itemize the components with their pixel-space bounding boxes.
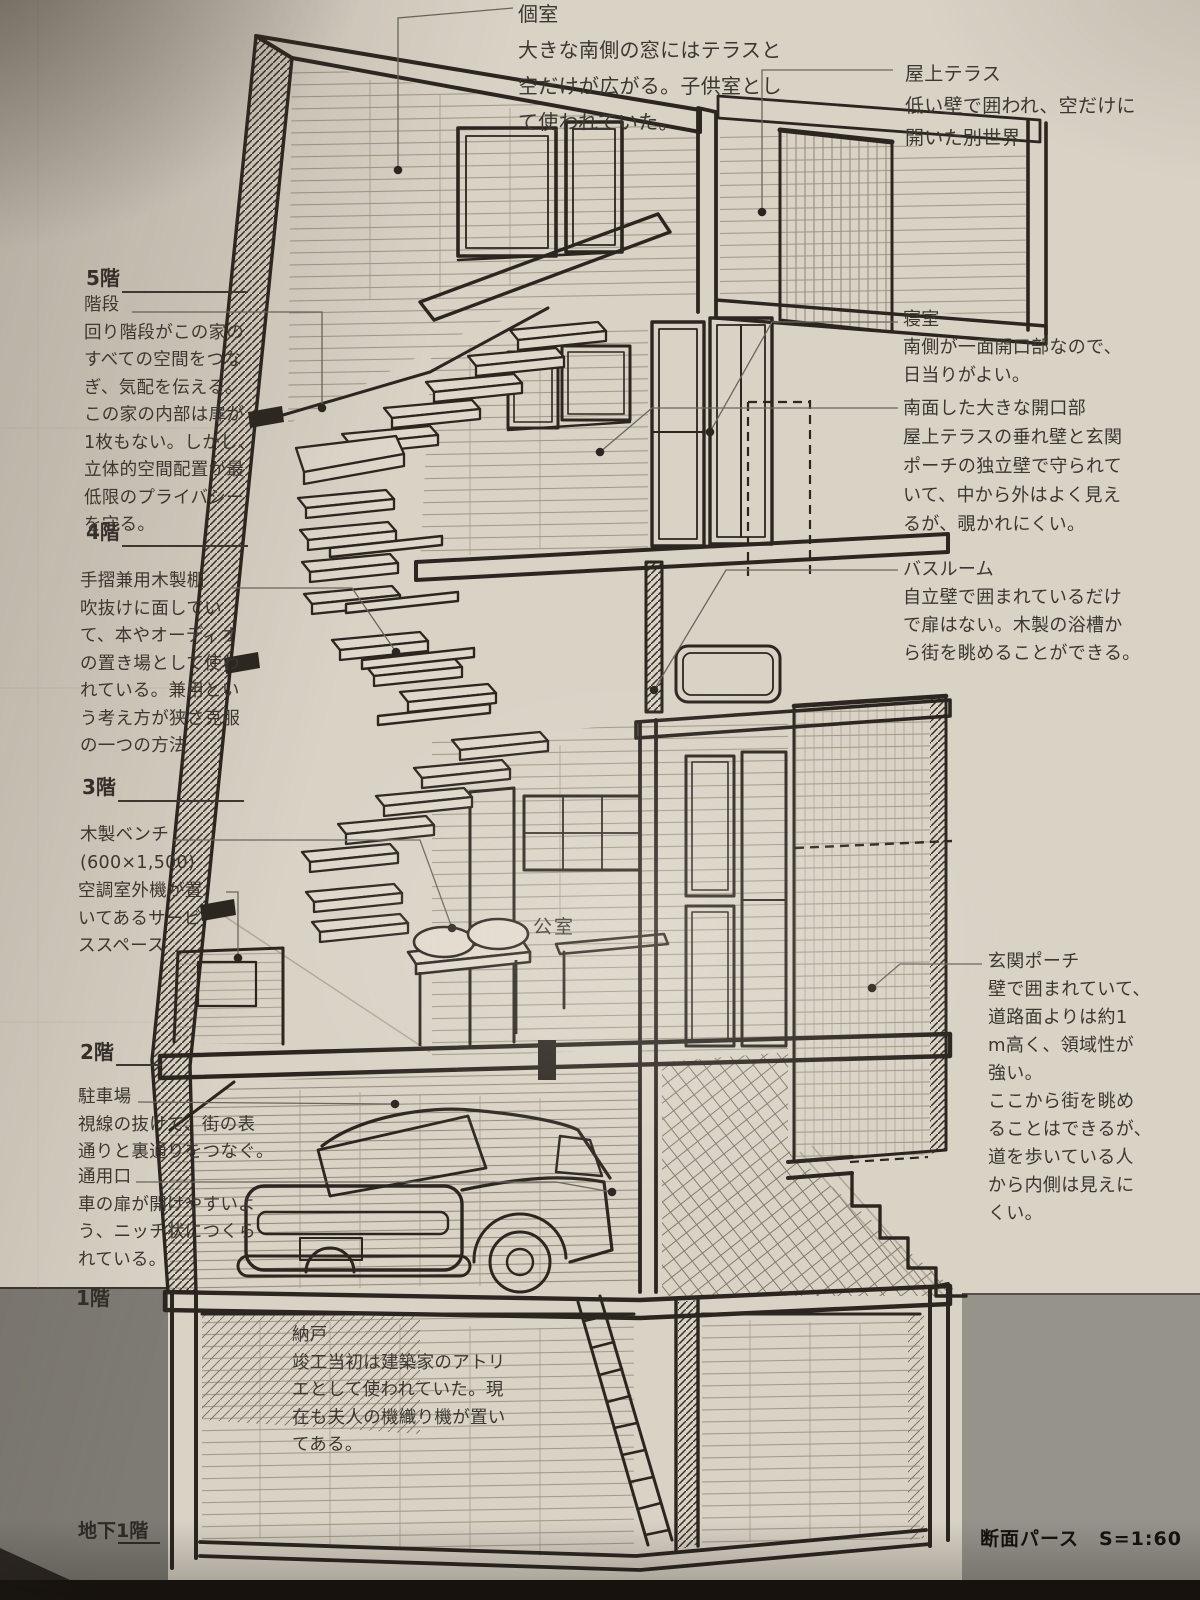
note-title: 納戸 [292, 1322, 542, 1350]
room-label-public-room: 公室 [533, 912, 575, 939]
floor-label-3f: 3階 [82, 771, 116, 800]
note-body: 屋上テラスの垂れ壁と玄関 ポーチの独立壁で守られて いて、中から外はよく見え る… [903, 423, 1173, 539]
note-service-entrance: 通用口 車の扉が開けやすいよ う、ニッチ状につくら れている。 [78, 1164, 288, 1274]
note-body: 回り階段がこの家の すべての空間をつな ぎ、気配を伝える。 この家の内部は扉が … [84, 320, 284, 540]
note-body: 大きな南側の窓にはテラスと 空だけが広がる。子供室とし て使われていた。 [518, 32, 828, 140]
note-storeroom: 納戸 竣工当初は建築家のアトリ エとして使われていた。現 在も夫人の機織り機が置… [292, 1322, 542, 1460]
floor-line-b1 [118, 1542, 160, 1544]
note-title: 寝室 [903, 306, 1173, 334]
floor-line-4f [122, 545, 248, 547]
note-private-room: 個室 大きな南側の窓にはテラスと 空だけが広がる。子供室とし て使われていた。 [518, 0, 828, 140]
note-body: 壁で囲まれていて、 道路面よりは約1 m高く、領域性が 強い。 ここから街を眺め… [988, 976, 1188, 1228]
note-title: 駐車場 [78, 1084, 288, 1112]
note-stairs: 階段 回り階段がこの家の すべての空間をつな ぎ、気配を伝える。 この家の内部は… [84, 292, 284, 540]
note-bedroom: 寝室 南側が一面開口部なので、 日当りがよい。 [903, 306, 1173, 390]
book-page-photo: 5階 4階 3階 2階 1階 地下1階 個室 大きな南側の窓にはテラスと 空だけ… [0, 0, 1200, 1600]
floor-label-b1: 地下1階 [78, 1516, 148, 1543]
note-title: 個室 [518, 0, 828, 32]
floor-label-5f: 5階 [86, 262, 120, 291]
note-body: 視線の抜けで、街の表 通りと裏通りをつなぐ。 [78, 1112, 288, 1167]
note-parking: 駐車場 視線の抜けで、街の表 通りと裏通りをつなぐ。 [78, 1084, 288, 1167]
note-body: 南側が一面開口部なので、 日当りがよい。 [903, 334, 1173, 390]
note-title: 通用口 [78, 1164, 288, 1192]
note-entrance-porch: 玄関ポーチ 壁で囲まれていて、 道路面よりは約1 m高く、領域性が 強い。 ここ… [988, 948, 1188, 1228]
note-body: 自立壁で囲まれているだけ で扉はない。木製の浴槽か ら街を眺めることができる。 [903, 584, 1183, 668]
note-body: 竣工当初は建築家のアトリ エとして使われていた。現 在も夫人の機織り機が置い て… [292, 1350, 542, 1460]
note-title: 木製ベンチ [80, 822, 280, 850]
note-bathroom: バスルーム 自立壁で囲まれているだけ で扉はない。木製の浴槽か ら街を眺めること… [903, 556, 1183, 668]
note-body: 吹抜けに面してい て、本やオーディオ の置き場として使わ れている。兼用とい う… [80, 596, 280, 761]
note-south-opening: 南面した大きな開口部 屋上テラスの垂れ壁と玄関 ポーチの独立壁で守られて いて、… [903, 394, 1173, 539]
floor-label-2f: 2階 [80, 1036, 114, 1065]
floor-line-2f [116, 1064, 162, 1066]
note-ac-service-space: 空調室外機が置 いてあるサービ ススペース [78, 878, 278, 961]
note-wooden-bench: 木製ベンチ (600×1,500) [80, 822, 280, 877]
note-title: 階段 [84, 292, 284, 320]
floor-line-3f [118, 800, 244, 802]
note-body: 車の扉が開けやすいよ う、ニッチ状につくら れている。 [78, 1192, 288, 1275]
note-handrail-shelf: 手摺兼用木製棚 吹抜けに面してい て、本やオーディオ の置き場として使わ れてい… [80, 568, 280, 761]
note-body: 低い壁で囲われ、空だけに 開いた別世界 [905, 90, 1175, 154]
note-body: (600×1,500) [80, 850, 280, 878]
floor-label-1f: 1階 [76, 1282, 110, 1311]
note-title: 南面した大きな開口部 [903, 394, 1173, 423]
drawing-caption: 断面パース S=1:60 [980, 1524, 1182, 1551]
note-title: バスルーム [903, 556, 1183, 584]
note-title: 玄関ポーチ [988, 948, 1188, 976]
note-title: 手摺兼用木製棚 [80, 568, 280, 596]
note-roof-terrace: 屋上テラス 低い壁で囲われ、空だけに 開いた別世界 [905, 58, 1175, 154]
note-title: 屋上テラス [905, 58, 1175, 90]
note-body: 空調室外機が置 いてあるサービ ススペース [78, 878, 278, 961]
